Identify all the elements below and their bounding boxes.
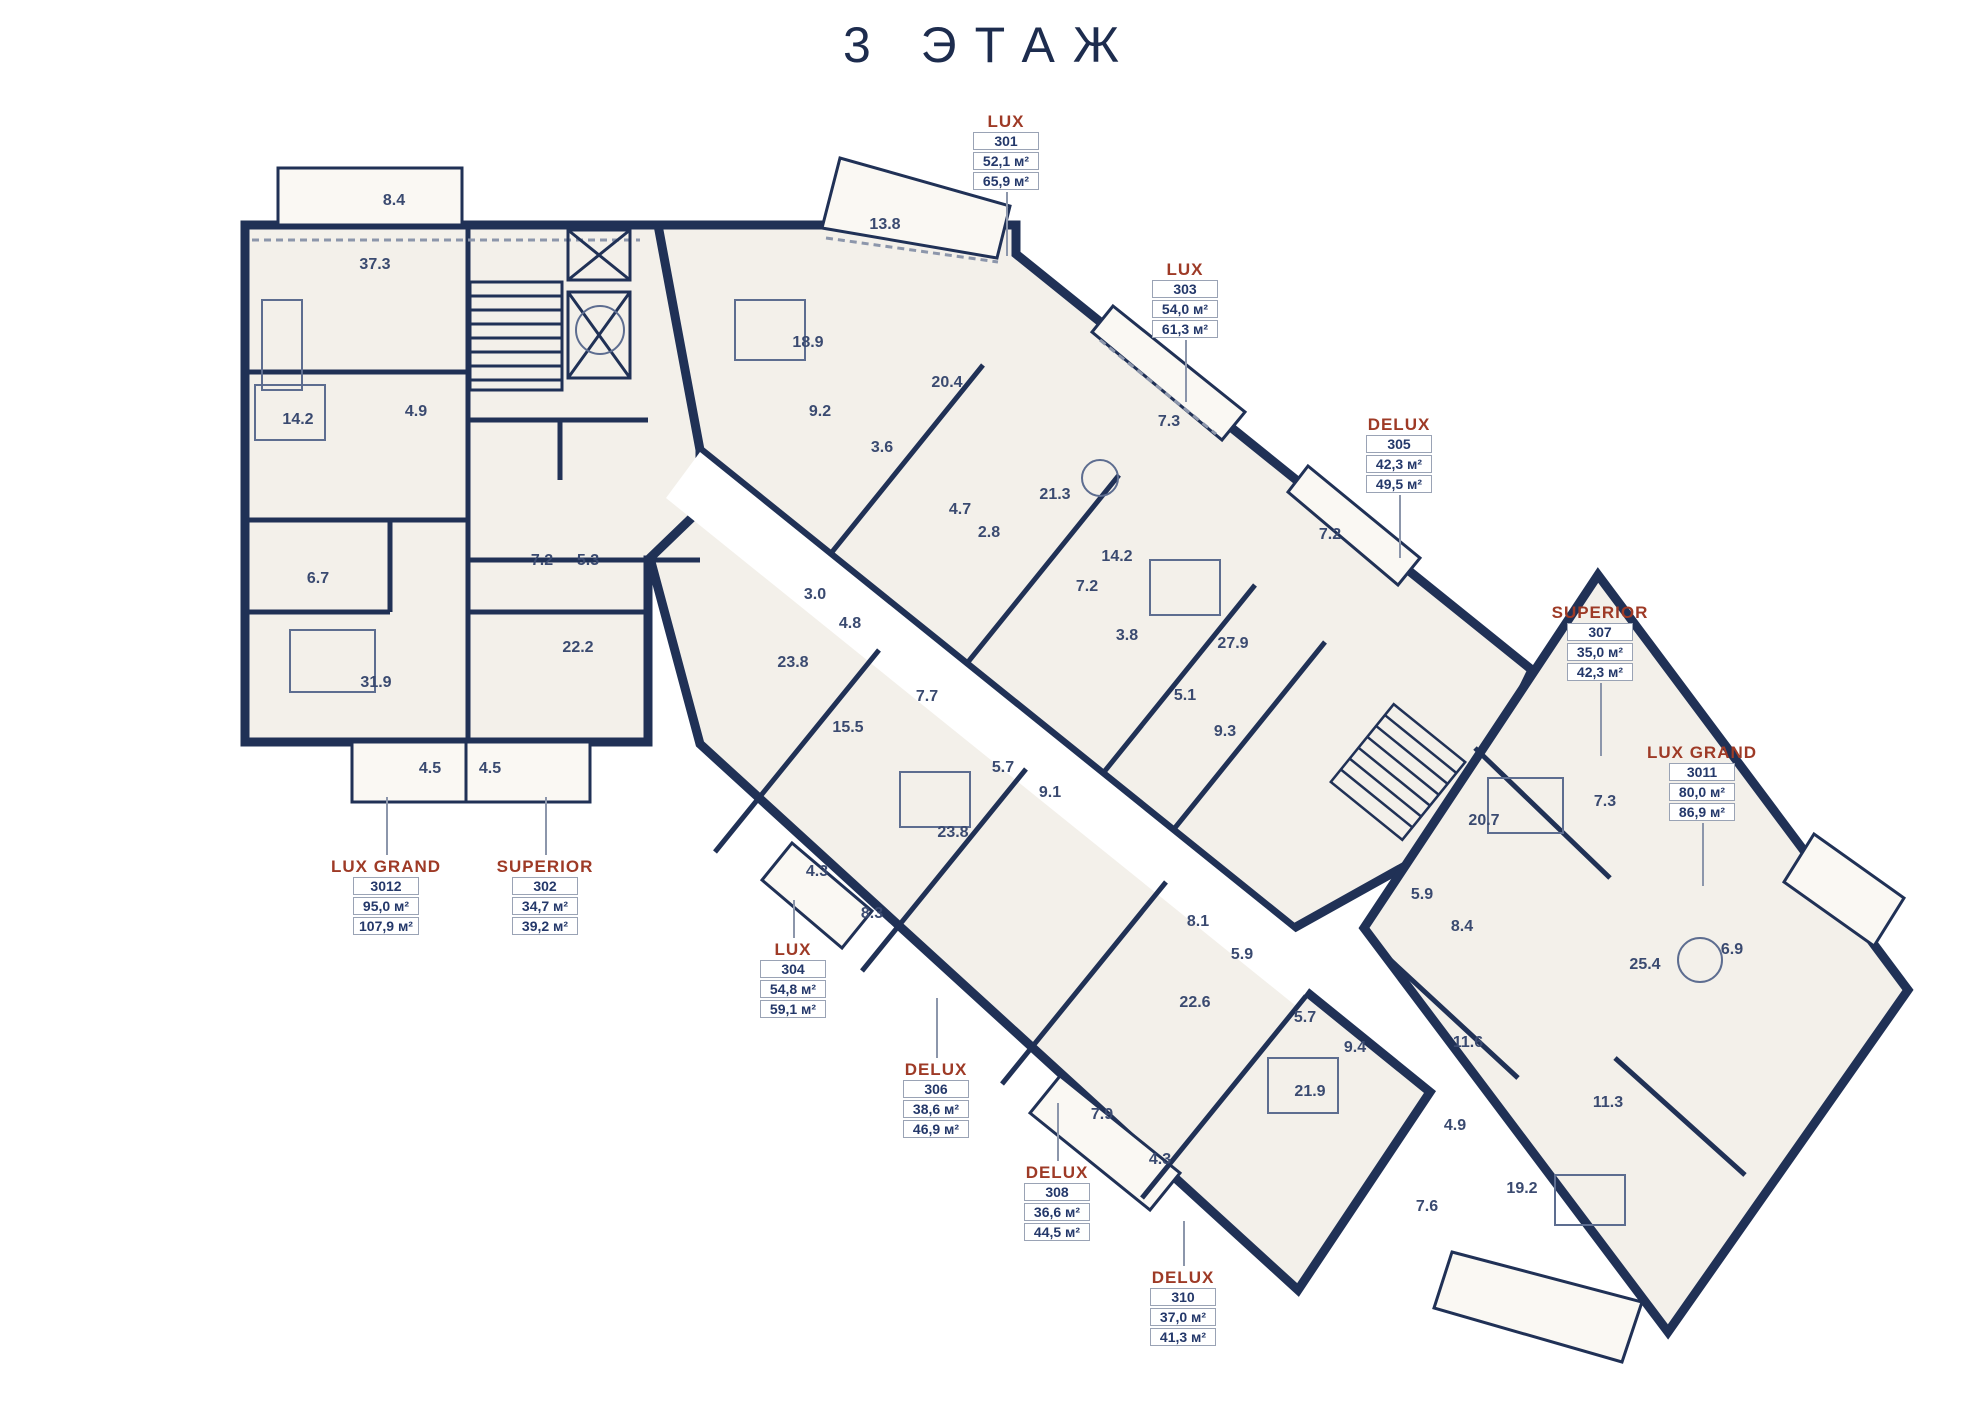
unit-area-1: 34,7 м² bbox=[512, 897, 578, 915]
page-title: 3 ЭТАЖ bbox=[0, 16, 1980, 74]
unit-type-label: DELUX bbox=[1368, 415, 1431, 435]
unit-type-label: LUX bbox=[775, 940, 812, 960]
unit-type-label: SUPERIOR bbox=[497, 857, 594, 877]
room-area-label: 4.3 bbox=[1149, 1151, 1171, 1169]
room-area-label: 5.3 bbox=[577, 552, 599, 570]
room-area-label: 2.8 bbox=[978, 524, 1000, 542]
unit-number: 302 bbox=[512, 877, 578, 895]
unit-area-2: 65,9 м² bbox=[973, 172, 1039, 190]
unit-info-box: 30354,0 м²61,3 м² bbox=[1152, 280, 1218, 340]
unit-info-box: 301180,0 м²86,9 м² bbox=[1669, 763, 1735, 823]
unit-area-2: 49,5 м² bbox=[1366, 475, 1432, 493]
room-area-label: 7.7 bbox=[916, 688, 938, 706]
callout-leader-line bbox=[1183, 1221, 1185, 1266]
unit-number: 3011 bbox=[1669, 763, 1735, 781]
unit-info-box: 30735,0 м²42,3 м² bbox=[1567, 623, 1633, 683]
room-area-label: 4.7 bbox=[949, 501, 971, 519]
room-area-label: 3.6 bbox=[871, 439, 893, 457]
unit-number: 307 bbox=[1567, 623, 1633, 641]
room-area-label: 13.8 bbox=[869, 216, 900, 234]
unit-info-box: 301295,0 м²107,9 м² bbox=[353, 877, 419, 937]
room-area-label: 18.9 bbox=[792, 334, 823, 352]
room-area-label: 25.4 bbox=[1629, 956, 1660, 974]
unit-area-1: 52,1 м² bbox=[973, 152, 1039, 170]
unit-area-2: 44,5 м² bbox=[1024, 1223, 1090, 1241]
room-area-label: 6.9 bbox=[1721, 941, 1743, 959]
unit-area-1: 37,0 м² bbox=[1150, 1308, 1216, 1326]
callout-leader-line bbox=[1702, 823, 1704, 886]
unit-area-2: 41,3 м² bbox=[1150, 1328, 1216, 1346]
unit-type-label: DELUX bbox=[905, 1060, 968, 1080]
unit-number: 310 bbox=[1150, 1288, 1216, 1306]
room-area-label: 21.9 bbox=[1294, 1083, 1325, 1101]
unit-area-1: 42,3 м² bbox=[1366, 455, 1432, 473]
room-area-label: 7.3 bbox=[1594, 793, 1616, 811]
room-area-label: 4.5 bbox=[419, 760, 441, 778]
callout-leader-line bbox=[545, 797, 547, 855]
room-area-label: 4.9 bbox=[405, 403, 427, 421]
room-area-label: 3.8 bbox=[1116, 627, 1138, 645]
callout-leader-line bbox=[793, 900, 795, 938]
room-area-label: 15.5 bbox=[832, 719, 863, 737]
callout-leader-line bbox=[1006, 192, 1008, 256]
unit-info-box: 30454,8 м²59,1 м² bbox=[760, 960, 826, 1020]
unit-area-1: 35,0 м² bbox=[1567, 643, 1633, 661]
room-area-label: 3.0 bbox=[804, 586, 826, 604]
unit-area-2: 39,2 м² bbox=[512, 917, 578, 935]
room-area-label: 7.2 bbox=[1076, 578, 1098, 596]
room-area-label: 5.7 bbox=[1294, 1009, 1316, 1027]
room-area-label: 14.2 bbox=[1101, 548, 1132, 566]
unit-area-1: 80,0 м² bbox=[1669, 783, 1735, 801]
unit-number: 305 bbox=[1366, 435, 1432, 453]
unit-area-2: 61,3 м² bbox=[1152, 320, 1218, 338]
room-area-label: 5.7 bbox=[992, 759, 1014, 777]
callout-leader-line bbox=[936, 998, 938, 1058]
unit-info-box: 30638,6 м²46,9 м² bbox=[903, 1080, 969, 1140]
room-area-label: 31.9 bbox=[360, 674, 391, 692]
unit-number: 303 bbox=[1152, 280, 1218, 298]
unit-type-label: LUX bbox=[1167, 260, 1204, 280]
room-area-label: 7.2 bbox=[531, 552, 553, 570]
callout-leader-line bbox=[1185, 340, 1187, 402]
unit-type-label: SUPERIOR bbox=[1552, 603, 1649, 623]
unit-number: 304 bbox=[760, 960, 826, 978]
room-area-label: 9.3 bbox=[1214, 723, 1236, 741]
unit-info-box: 30542,3 м²49,5 м² bbox=[1366, 435, 1432, 495]
room-area-label: 19.2 bbox=[1506, 1180, 1537, 1198]
unit-type-label: LUX bbox=[988, 112, 1025, 132]
unit-info-box: 30152,1 м²65,9 м² bbox=[973, 132, 1039, 192]
room-area-label: 6.7 bbox=[307, 570, 329, 588]
unit-number: 308 bbox=[1024, 1183, 1090, 1201]
unit-info-box: 31037,0 м²41,3 м² bbox=[1150, 1288, 1216, 1348]
room-area-label: 8.1 bbox=[1187, 913, 1209, 931]
unit-area-1: 36,6 м² bbox=[1024, 1203, 1090, 1221]
room-area-label: 8.3 bbox=[861, 905, 883, 923]
room-area-label: 4.9 bbox=[1444, 1117, 1466, 1135]
unit-type-label: LUX GRAND bbox=[331, 857, 441, 877]
floor-plan-page: 8.437.314.24.96.731.94.54.57.25.322.213.… bbox=[0, 0, 1980, 1414]
unit-type-label: DELUX bbox=[1026, 1163, 1089, 1183]
room-area-label: 27.9 bbox=[1217, 635, 1248, 653]
room-area-label: 20.4 bbox=[931, 374, 962, 392]
unit-info-box: 30234,7 м²39,2 м² bbox=[512, 877, 578, 937]
callout-leader-line bbox=[1057, 1103, 1059, 1161]
room-area-label: 5.9 bbox=[1231, 946, 1253, 964]
unit-area-1: 54,8 м² bbox=[760, 980, 826, 998]
room-area-label: 22.6 bbox=[1179, 994, 1210, 1012]
unit-type-label: DELUX bbox=[1152, 1268, 1215, 1288]
callout-leader-line bbox=[1399, 495, 1401, 558]
room-area-label: 7.2 bbox=[1319, 526, 1341, 544]
room-area-label: 9.4 bbox=[1344, 1039, 1366, 1057]
room-area-label: 20.7 bbox=[1468, 812, 1499, 830]
callout-leader-line bbox=[1600, 683, 1602, 756]
room-area-label: 5.1 bbox=[1174, 687, 1196, 705]
unit-area-2: 59,1 м² bbox=[760, 1000, 826, 1018]
room-area-label: 5.9 bbox=[1411, 886, 1433, 904]
unit-number: 3012 bbox=[353, 877, 419, 895]
callout-leader-line bbox=[386, 797, 388, 855]
room-area-label: 7.3 bbox=[1158, 413, 1180, 431]
unit-area-1: 95,0 м² bbox=[353, 897, 419, 915]
unit-number: 301 bbox=[973, 132, 1039, 150]
room-area-label: 37.3 bbox=[359, 256, 390, 274]
unit-area-2: 46,9 м² bbox=[903, 1120, 969, 1138]
unit-area-2: 86,9 м² bbox=[1669, 803, 1735, 821]
room-area-label: 7.9 bbox=[1091, 1106, 1113, 1124]
unit-area-1: 38,6 м² bbox=[903, 1100, 969, 1118]
unit-info-box: 30836,6 м²44,5 м² bbox=[1024, 1183, 1090, 1243]
room-area-label: 4.5 bbox=[479, 760, 501, 778]
room-area-label: 4.3 bbox=[806, 863, 828, 881]
labels-overlay: 8.437.314.24.96.731.94.54.57.25.322.213.… bbox=[0, 0, 1980, 1414]
room-area-label: 8.4 bbox=[383, 192, 405, 210]
unit-area-2: 107,9 м² bbox=[353, 917, 419, 935]
unit-number: 306 bbox=[903, 1080, 969, 1098]
room-area-label: 23.8 bbox=[937, 824, 968, 842]
room-area-label: 22.2 bbox=[562, 639, 593, 657]
room-area-label: 11.6 bbox=[1453, 1034, 1483, 1052]
room-area-label: 7.6 bbox=[1416, 1198, 1438, 1216]
room-area-label: 8.4 bbox=[1451, 918, 1473, 936]
unit-area-2: 42,3 м² bbox=[1567, 663, 1633, 681]
room-area-label: 4.8 bbox=[839, 615, 861, 633]
room-area-label: 21.3 bbox=[1039, 486, 1070, 504]
unit-type-label: LUX GRAND bbox=[1647, 743, 1757, 763]
unit-area-1: 54,0 м² bbox=[1152, 300, 1218, 318]
room-area-label: 9.2 bbox=[809, 403, 831, 421]
room-area-label: 11.3 bbox=[1593, 1094, 1623, 1112]
room-area-label: 9.1 bbox=[1039, 784, 1061, 802]
room-area-label: 14.2 bbox=[282, 411, 313, 429]
room-area-label: 23.8 bbox=[777, 654, 808, 672]
